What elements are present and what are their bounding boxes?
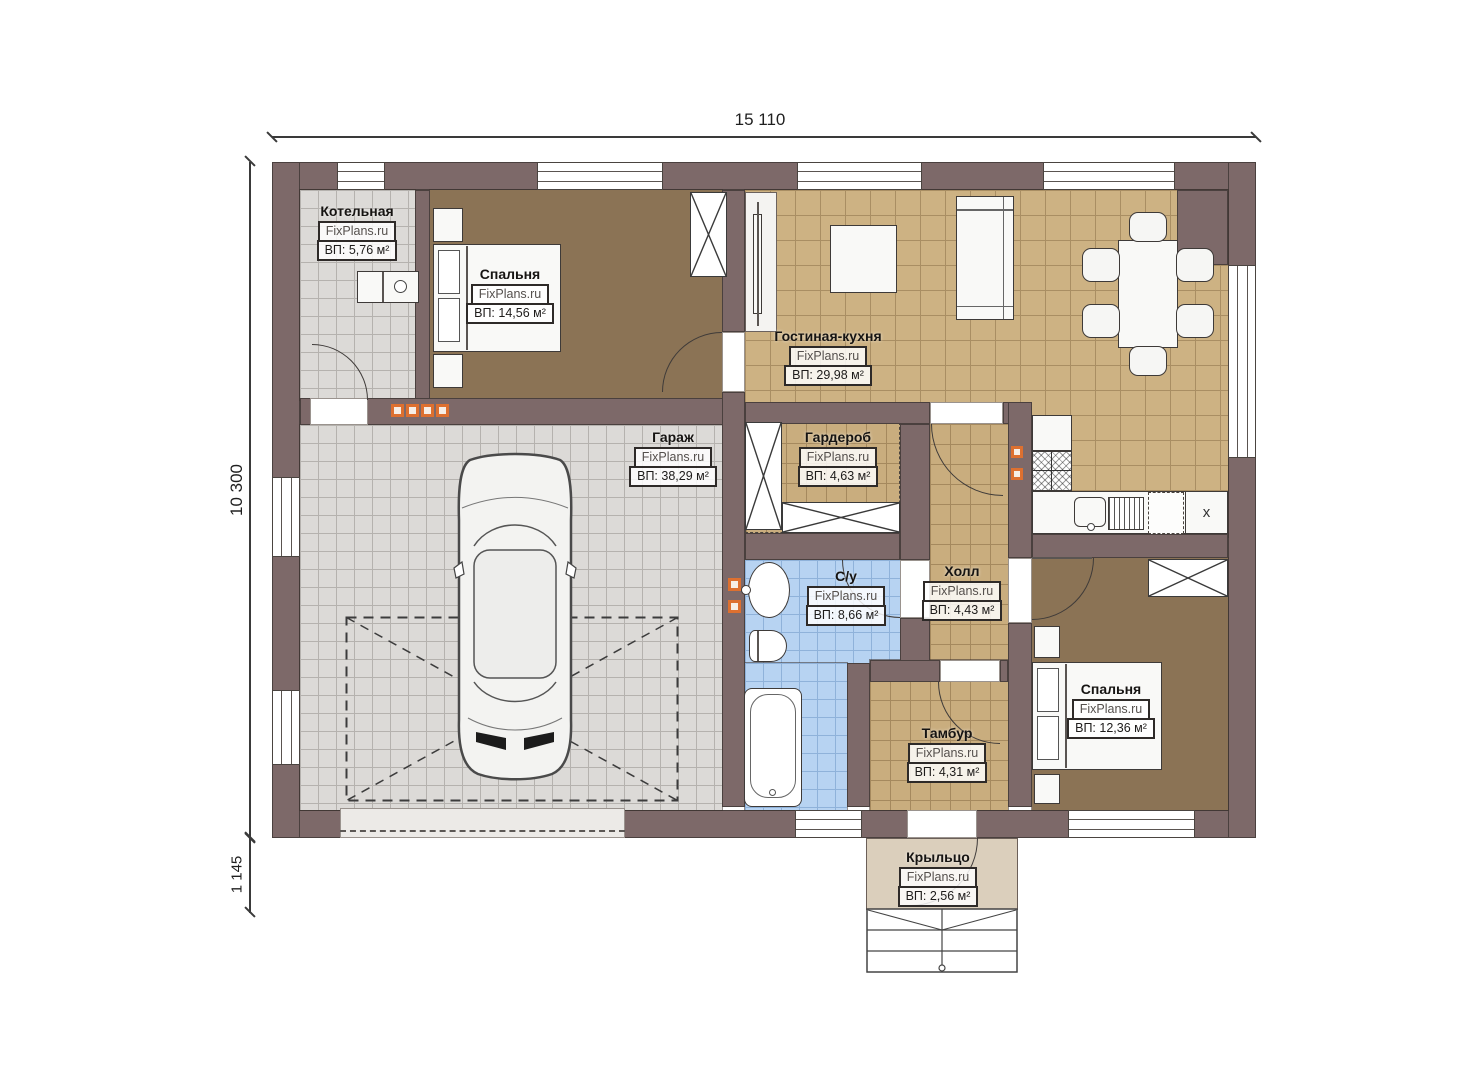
room-title: Гостиная-кухня bbox=[774, 328, 881, 344]
chair bbox=[1176, 304, 1214, 338]
room-label-porch: Крыльцо FixPlans.ru ВП: 2,56 м² bbox=[858, 849, 1018, 907]
wardrobe-bedroom-2 bbox=[1148, 559, 1228, 597]
faucet-icon bbox=[1087, 523, 1095, 531]
window-garage-west-upper bbox=[272, 477, 300, 557]
window-boiler-room bbox=[337, 162, 385, 190]
boiler-unit bbox=[357, 271, 419, 303]
wall-hall-kitchen-upper bbox=[1008, 402, 1032, 558]
dimension-line-left bbox=[249, 162, 251, 838]
coffee-table bbox=[830, 225, 897, 293]
window-bathroom-south bbox=[795, 810, 862, 838]
dimension-porch-depth: 1 145 bbox=[229, 840, 246, 910]
dimension-line-top bbox=[272, 136, 1256, 138]
radiator-icon bbox=[406, 404, 419, 417]
dimension-line-porch bbox=[249, 838, 251, 913]
room-brand: FixPlans.ru bbox=[899, 867, 978, 888]
sofa-armrest-line bbox=[957, 209, 1013, 211]
wall-vestibule-north-right bbox=[1000, 660, 1008, 682]
radiator-icon bbox=[421, 404, 434, 417]
room-area: ВП: 14,56 м² bbox=[466, 303, 554, 324]
room-title: Гараж bbox=[652, 429, 694, 445]
bathtub-drain-icon bbox=[769, 789, 776, 796]
window-bedroom-1 bbox=[537, 162, 663, 190]
room-title: Крыльцо bbox=[906, 849, 970, 865]
door-opening-kitchen-hall bbox=[930, 402, 1003, 424]
nightstand bbox=[1034, 626, 1060, 658]
room-label-vestibule: Тамбур FixPlans.ru ВП: 4,31 м² bbox=[867, 725, 1027, 783]
room-brand: FixPlans.ru bbox=[807, 586, 886, 607]
room-brand: FixPlans.ru bbox=[923, 581, 1002, 602]
room-title: Тамбур bbox=[922, 725, 973, 741]
nightstand bbox=[1034, 774, 1060, 804]
boiler-burner-icon bbox=[394, 280, 407, 293]
window-bedroom-2-south bbox=[1068, 810, 1195, 838]
door-opening-hall-vestibule bbox=[940, 660, 1000, 682]
dining-table bbox=[1118, 240, 1178, 348]
room-title: С/у bbox=[835, 568, 857, 584]
window-garage-west-lower bbox=[272, 690, 300, 765]
room-label-wardrobe: Гардероб FixPlans.ru ВП: 4,63 м² bbox=[758, 429, 918, 487]
room-brand: FixPlans.ru bbox=[799, 447, 878, 468]
bathroom-faucet-icon bbox=[741, 585, 751, 595]
car-top-view bbox=[452, 450, 578, 782]
wall-kitchen-bedroom2 bbox=[1032, 534, 1228, 558]
room-brand: FixPlans.ru bbox=[318, 221, 397, 242]
radiator-icon bbox=[1011, 446, 1023, 458]
wardrobe-bedroom-1 bbox=[690, 192, 727, 277]
radiator-icon bbox=[728, 600, 741, 613]
appliance-x-marker: х bbox=[1185, 491, 1228, 534]
wall-living-wardrobe bbox=[745, 402, 930, 424]
room-title: Холл bbox=[944, 563, 979, 579]
chair bbox=[1129, 212, 1167, 242]
room-label-living-kitchen: Гостиная-кухня FixPlans.ru ВП: 29,98 м² bbox=[748, 328, 908, 386]
room-label-boiler: Котельная FixPlans.ru ВП: 5,76 м² bbox=[277, 203, 437, 261]
room-area: ВП: 12,36 м² bbox=[1067, 718, 1155, 739]
room-brand: FixPlans.ru bbox=[1072, 699, 1151, 720]
exterior-wall-right bbox=[1228, 162, 1256, 838]
porch-steps bbox=[866, 908, 1018, 974]
garage-door-dashed-line bbox=[340, 830, 625, 832]
room-area: ВП: 4,63 м² bbox=[798, 466, 879, 487]
room-label-garage: Гараж FixPlans.ru ВП: 38,29 м² bbox=[593, 429, 753, 487]
wall-vestibule-north-left bbox=[870, 660, 940, 682]
room-brand: FixPlans.ru bbox=[471, 284, 550, 305]
window-living-east bbox=[1228, 265, 1256, 458]
sofa-back-line bbox=[1003, 197, 1005, 319]
room-brand: FixPlans.ru bbox=[908, 743, 987, 764]
door-opening-bedroom-1 bbox=[722, 332, 745, 392]
room-area: ВП: 29,98 м² bbox=[784, 365, 872, 386]
room-title: Котельная bbox=[320, 203, 393, 219]
room-brand: FixPlans.ru bbox=[634, 447, 713, 468]
toilet-tank-line bbox=[757, 631, 759, 661]
room-area: ВП: 4,43 м² bbox=[922, 600, 1003, 621]
room-area: ВП: 5,76 м² bbox=[317, 240, 398, 261]
room-title: Гардероб bbox=[805, 429, 871, 445]
chair bbox=[1082, 248, 1120, 282]
room-area: ВП: 4,31 м² bbox=[907, 762, 988, 783]
window-living-left bbox=[797, 162, 922, 190]
sofa-armrest-line bbox=[957, 306, 1013, 308]
nightstand bbox=[433, 354, 463, 388]
garage-door-opening bbox=[340, 808, 625, 838]
boiler-unit-divider bbox=[382, 272, 384, 302]
door-leaf-bedroom-2 bbox=[1032, 557, 1092, 559]
dish-drainer bbox=[1108, 497, 1144, 530]
tv-axis-line bbox=[757, 202, 759, 326]
window-living-right bbox=[1043, 162, 1175, 190]
wardrobe-unit bbox=[782, 502, 900, 533]
dimension-height: 10 300 bbox=[227, 450, 247, 530]
chair bbox=[1129, 346, 1167, 376]
kitchen-cabinet bbox=[1032, 415, 1072, 451]
radiator-icon bbox=[1011, 468, 1023, 480]
door-opening-entrance bbox=[907, 810, 977, 838]
chair bbox=[1176, 248, 1214, 282]
room-area: ВП: 8,66 м² bbox=[806, 605, 887, 626]
dimension-width: 15 110 bbox=[700, 110, 820, 130]
chair bbox=[1082, 304, 1120, 338]
room-label-bedroom-1: Спальня FixPlans.ru ВП: 14,56 м² bbox=[430, 266, 590, 324]
sofa bbox=[956, 196, 1014, 320]
toilet bbox=[749, 630, 787, 662]
room-title: Спальня bbox=[480, 266, 540, 282]
room-label-hall: Холл FixPlans.ru ВП: 4,43 м² bbox=[882, 563, 1042, 621]
radiator-icon bbox=[391, 404, 404, 417]
radiator-icon bbox=[728, 578, 741, 591]
door-opening-boiler-garage bbox=[310, 398, 368, 425]
radiator-icon bbox=[436, 404, 449, 417]
bathtub-inner bbox=[750, 694, 796, 798]
nightstand bbox=[433, 208, 463, 242]
wall-wardrobe-bathroom bbox=[745, 533, 900, 560]
floor-plan-canvas: х bbox=[0, 0, 1473, 1080]
kitchen-counter-dashed bbox=[1148, 492, 1184, 534]
room-label-bedroom-2: Спальня FixPlans.ru ВП: 12,36 м² bbox=[1031, 681, 1191, 739]
room-area: ВП: 2,56 м² bbox=[898, 886, 979, 907]
stove bbox=[1032, 451, 1072, 491]
room-area: ВП: 38,29 м² bbox=[629, 466, 717, 487]
room-title: Спальня bbox=[1081, 681, 1141, 697]
room-brand: FixPlans.ru bbox=[789, 346, 868, 367]
